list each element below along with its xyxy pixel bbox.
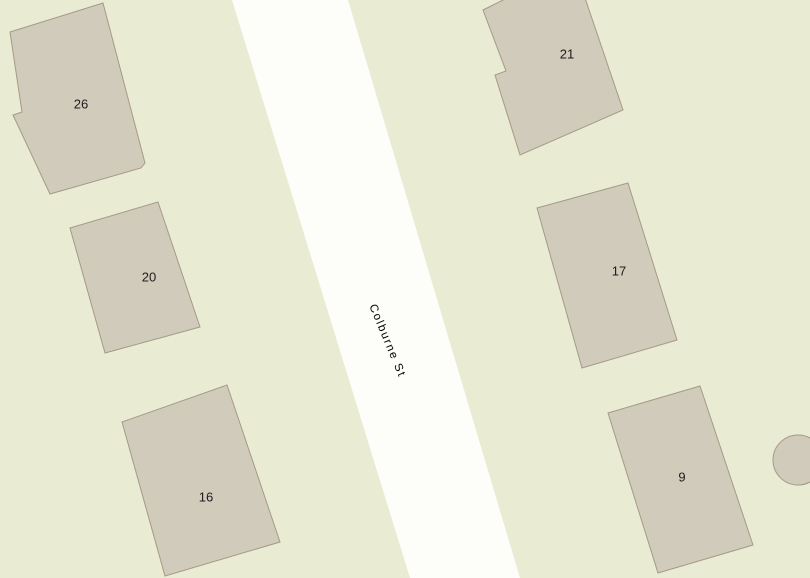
building-16-label: 16 — [199, 490, 213, 505]
building-20-label: 20 — [142, 270, 156, 285]
building-26-label: 26 — [74, 97, 88, 112]
map-canvas[interactable]: 26 20 16 21 17 9 Colburne St — [0, 0, 810, 578]
building-17-label: 17 — [612, 264, 626, 279]
map-svg[interactable]: 26 20 16 21 17 9 Colburne St — [0, 0, 810, 578]
building-9-label: 9 — [678, 470, 685, 485]
building-21-label: 21 — [560, 47, 574, 62]
